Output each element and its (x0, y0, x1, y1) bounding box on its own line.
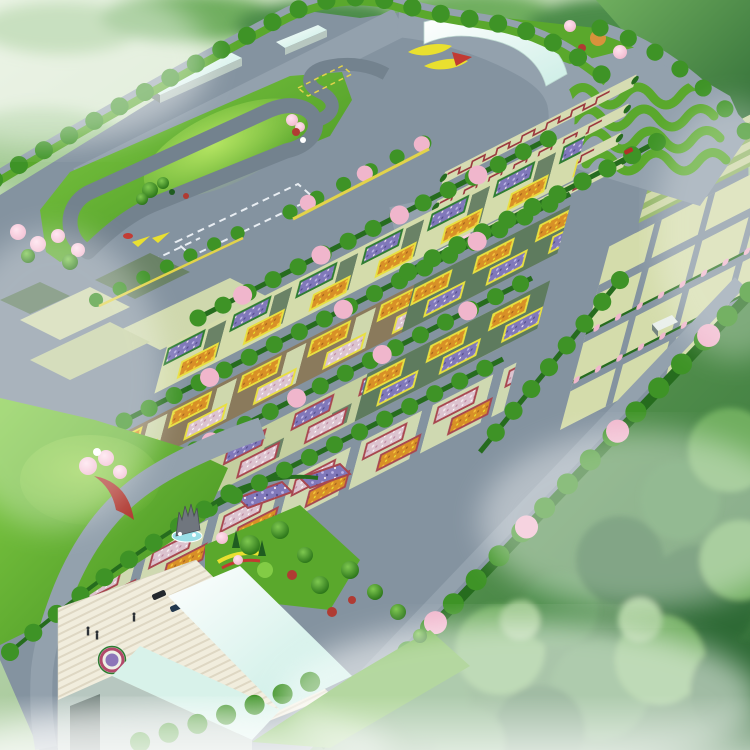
pedestrian (96, 631, 99, 640)
pedestrian-head (133, 613, 136, 616)
red-shrub (292, 128, 300, 136)
pink-blossom-tree (564, 20, 576, 32)
red-shrub (183, 193, 189, 199)
tree (367, 584, 383, 600)
tree (157, 177, 169, 189)
pedestrian-body (87, 630, 89, 636)
red-shrub (287, 570, 297, 580)
tree (240, 535, 260, 555)
pedestrian (133, 613, 136, 622)
pedestrian-body (133, 616, 135, 622)
tree (311, 576, 329, 594)
site-plan-rendering: Aerial bird's-eye architectural renderin… (0, 0, 750, 750)
pink-blossom-tree (216, 532, 228, 544)
white-bloom (300, 137, 306, 143)
water-splash (178, 532, 182, 536)
pedestrian-head (96, 631, 99, 634)
red-shrub (348, 596, 356, 604)
pink-blossom-tree (613, 45, 627, 59)
yellow-green-tree (257, 562, 273, 578)
tree (341, 561, 359, 579)
red-dot-bed (123, 233, 133, 239)
rendering-stage: Aerial bird's-eye architectural renderin… (0, 0, 750, 750)
fog-bottom-strip (0, 695, 750, 750)
tree (390, 604, 406, 620)
tree (297, 547, 313, 563)
tree (271, 521, 289, 539)
shrub (169, 189, 175, 195)
pedestrian-body (96, 634, 98, 640)
pink-blossom-tree (233, 555, 243, 565)
water-splash (192, 533, 196, 537)
tree (136, 193, 148, 205)
red-shrub (327, 607, 337, 617)
pedestrian-head (87, 627, 90, 630)
emblem-core (106, 654, 119, 667)
pedestrian (87, 627, 90, 636)
